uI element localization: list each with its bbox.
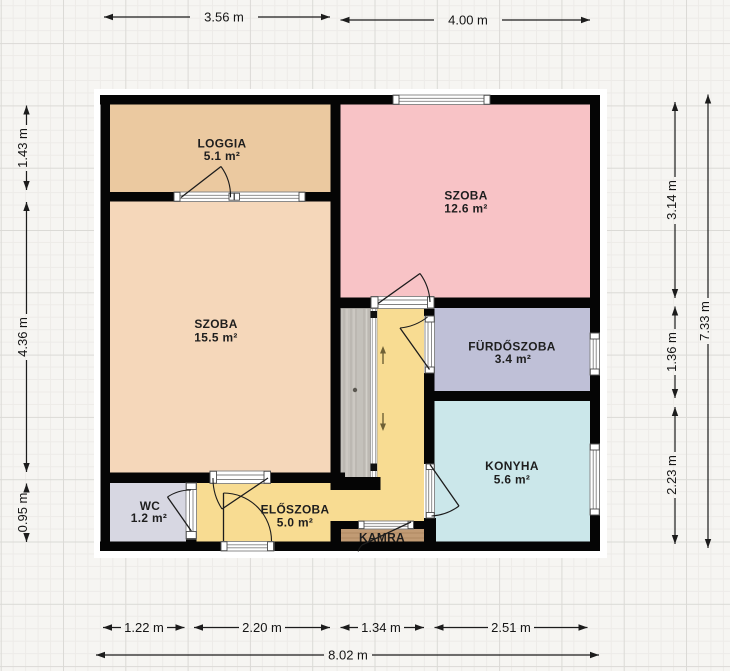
svg-text:2.51 m: 2.51 m (491, 620, 531, 635)
svg-text:5.0 m²: 5.0 m² (277, 516, 313, 530)
svg-text:3.14 m: 3.14 m (664, 180, 679, 220)
svg-text:2.20 m: 2.20 m (242, 620, 282, 635)
svg-text:1.36 m: 1.36 m (664, 332, 679, 372)
svg-text:7.33 m: 7.33 m (697, 301, 712, 341)
svg-text:SZOBA: SZOBA (194, 317, 237, 331)
svg-text:12.6 m²: 12.6 m² (444, 202, 487, 216)
svg-text:3.56 m: 3.56 m (204, 10, 244, 25)
svg-text:ELŐSZOBA: ELŐSZOBA (261, 502, 330, 517)
svg-text:KONYHA: KONYHA (485, 459, 539, 473)
svg-text:1.34 m: 1.34 m (361, 620, 401, 635)
svg-text:3.4 m²: 3.4 m² (495, 352, 531, 366)
svg-text:KAMRA: KAMRA (359, 531, 405, 545)
svg-text:1.43 m: 1.43 m (15, 128, 30, 168)
svg-text:SZOBA: SZOBA (444, 189, 487, 203)
svg-text:5.1 m²: 5.1 m² (204, 149, 240, 163)
svg-text:2.23 m: 2.23 m (664, 455, 679, 495)
svg-text:1.2 m²: 1.2 m² (131, 511, 167, 525)
svg-text:15.5 m²: 15.5 m² (194, 331, 237, 345)
svg-text:4.00 m: 4.00 m (448, 13, 488, 28)
svg-text:8.02 m: 8.02 m (328, 648, 368, 663)
svg-text:5.6 m²: 5.6 m² (494, 473, 530, 487)
svg-text:4.36 m: 4.36 m (15, 317, 30, 357)
svg-text:1.22 m: 1.22 m (124, 620, 164, 635)
svg-text:0.95 m: 0.95 m (15, 493, 30, 533)
